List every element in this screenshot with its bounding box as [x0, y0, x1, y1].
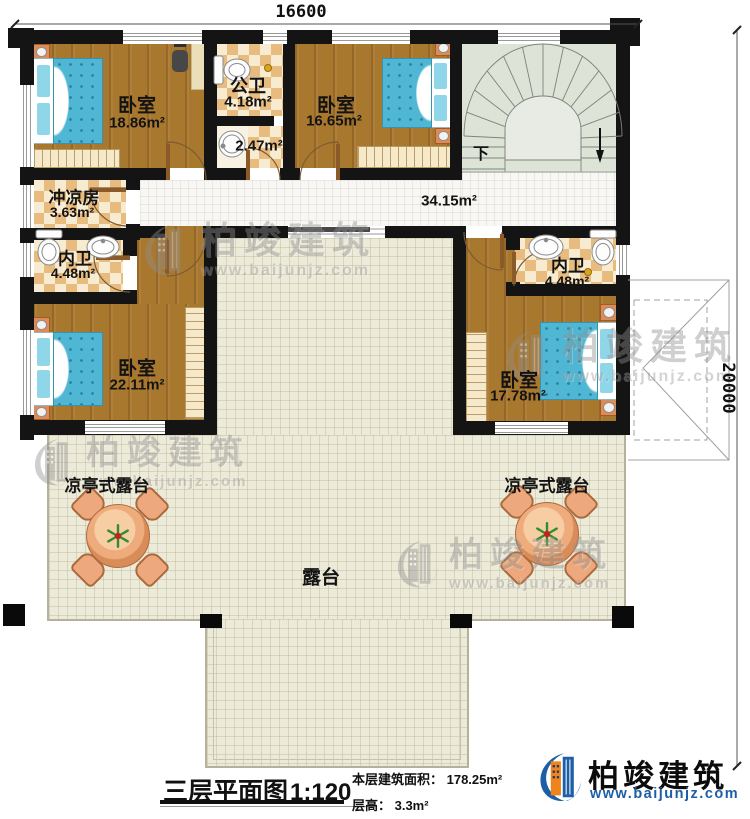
bed-duvet [540, 322, 598, 400]
title-underline-thin [160, 806, 376, 807]
window [498, 30, 560, 44]
wall-segment [140, 226, 165, 238]
wall-segment [204, 30, 217, 180]
wall-segment [204, 168, 248, 180]
bed-duvet [382, 58, 432, 128]
roof-outline [628, 280, 729, 460]
room-area-bedroom-top-left: 18.86m² [109, 115, 165, 132]
floor-hallway-stairs [462, 172, 616, 226]
wall-segment [20, 168, 168, 180]
bed-duvet [53, 332, 103, 406]
room-label-pavilion-terrace-right: 凉亭式露台 [505, 472, 590, 497]
window [85, 421, 165, 434]
room-label-terrace: 露台 [302, 563, 340, 590]
stairs-down-arrow-icon [596, 128, 604, 163]
floor-plan: 柏竣建筑 www.baijunjz.com 柏竣建筑 www.baijunjz.… [0, 0, 750, 819]
pillow [599, 362, 614, 394]
wardrobe [33, 149, 120, 168]
wall-segment [126, 168, 140, 190]
title-underline [160, 800, 344, 804]
room-area-bedroom-bottom-left: 22.11m² [109, 377, 164, 394]
plant-icon [105, 523, 131, 549]
window [20, 185, 34, 228]
wall-segment [450, 30, 462, 180]
terrace-column [200, 614, 222, 628]
pillow [36, 102, 51, 136]
wall-segment [20, 228, 140, 240]
wall-segment [203, 226, 288, 238]
dimension-height: 20000 [718, 362, 738, 413]
room-area-public-bathroom: 4.18m² [224, 94, 272, 111]
floor-height-text: 层高： 3.3m² [352, 795, 429, 814]
window [20, 330, 34, 415]
pillow [599, 328, 614, 360]
wardrobe [185, 307, 206, 419]
wall-segment [280, 168, 300, 180]
window [332, 30, 410, 44]
room-area-ensuite-right: 4.48m² [545, 273, 589, 289]
room-label-pavilion-terrace-left: 凉亭式露台 [65, 472, 150, 497]
pillow [36, 337, 51, 367]
wall-segment [453, 226, 466, 435]
wall-segment [283, 30, 295, 180]
pillow [36, 64, 51, 98]
room-label-bedroom-top-left: 卧室 [118, 91, 156, 118]
terrace-column [450, 614, 472, 628]
window [263, 30, 287, 44]
window [123, 30, 202, 44]
window [495, 422, 568, 434]
brand-website: www.baijunjz.com [590, 786, 739, 802]
room-area-washroom: 2.47m² [235, 138, 283, 155]
nightstand [33, 317, 50, 333]
room-area-bedroom-bottom-right: 17.78m² [490, 388, 546, 405]
room-area-shower-room: 3.63m² [50, 204, 94, 220]
room-area-ensuite-left: 4.48m² [51, 265, 95, 281]
wall-segment [502, 226, 630, 238]
floor-hallway [140, 180, 462, 226]
terrace-column [612, 606, 634, 628]
plant-icon [534, 521, 560, 547]
wall-segment [216, 116, 274, 126]
window [616, 245, 630, 275]
floor-middle-terrace [217, 238, 453, 435]
wardrobe [466, 332, 487, 432]
desk-chair [172, 50, 188, 72]
dimension-width: 16600 [275, 2, 326, 22]
pillow [433, 62, 448, 90]
wall-segment [506, 238, 520, 250]
wall-segment [385, 226, 462, 238]
bed-duvet [53, 58, 103, 144]
brand-logo-icon [537, 749, 583, 805]
room-area-hallway: 34.15m² [421, 193, 477, 210]
window [20, 85, 34, 167]
pillow [36, 369, 51, 399]
nightstand [33, 404, 50, 420]
terrace-column [3, 604, 25, 626]
pillow [433, 94, 448, 122]
floor-terrace-extension [205, 619, 469, 768]
window [20, 243, 34, 277]
room-area-bedroom-top-right: 16.65m² [306, 113, 362, 130]
wall-segment [204, 226, 217, 433]
stairs-down-label: 下 [473, 140, 489, 164]
wall-segment [20, 292, 137, 304]
wall-segment [338, 168, 462, 180]
sliding-door [288, 227, 385, 234]
wall-segment [123, 240, 137, 256]
floor-area-text: 本层建筑面积： 178.25m² [352, 769, 502, 788]
wardrobe [357, 146, 452, 168]
